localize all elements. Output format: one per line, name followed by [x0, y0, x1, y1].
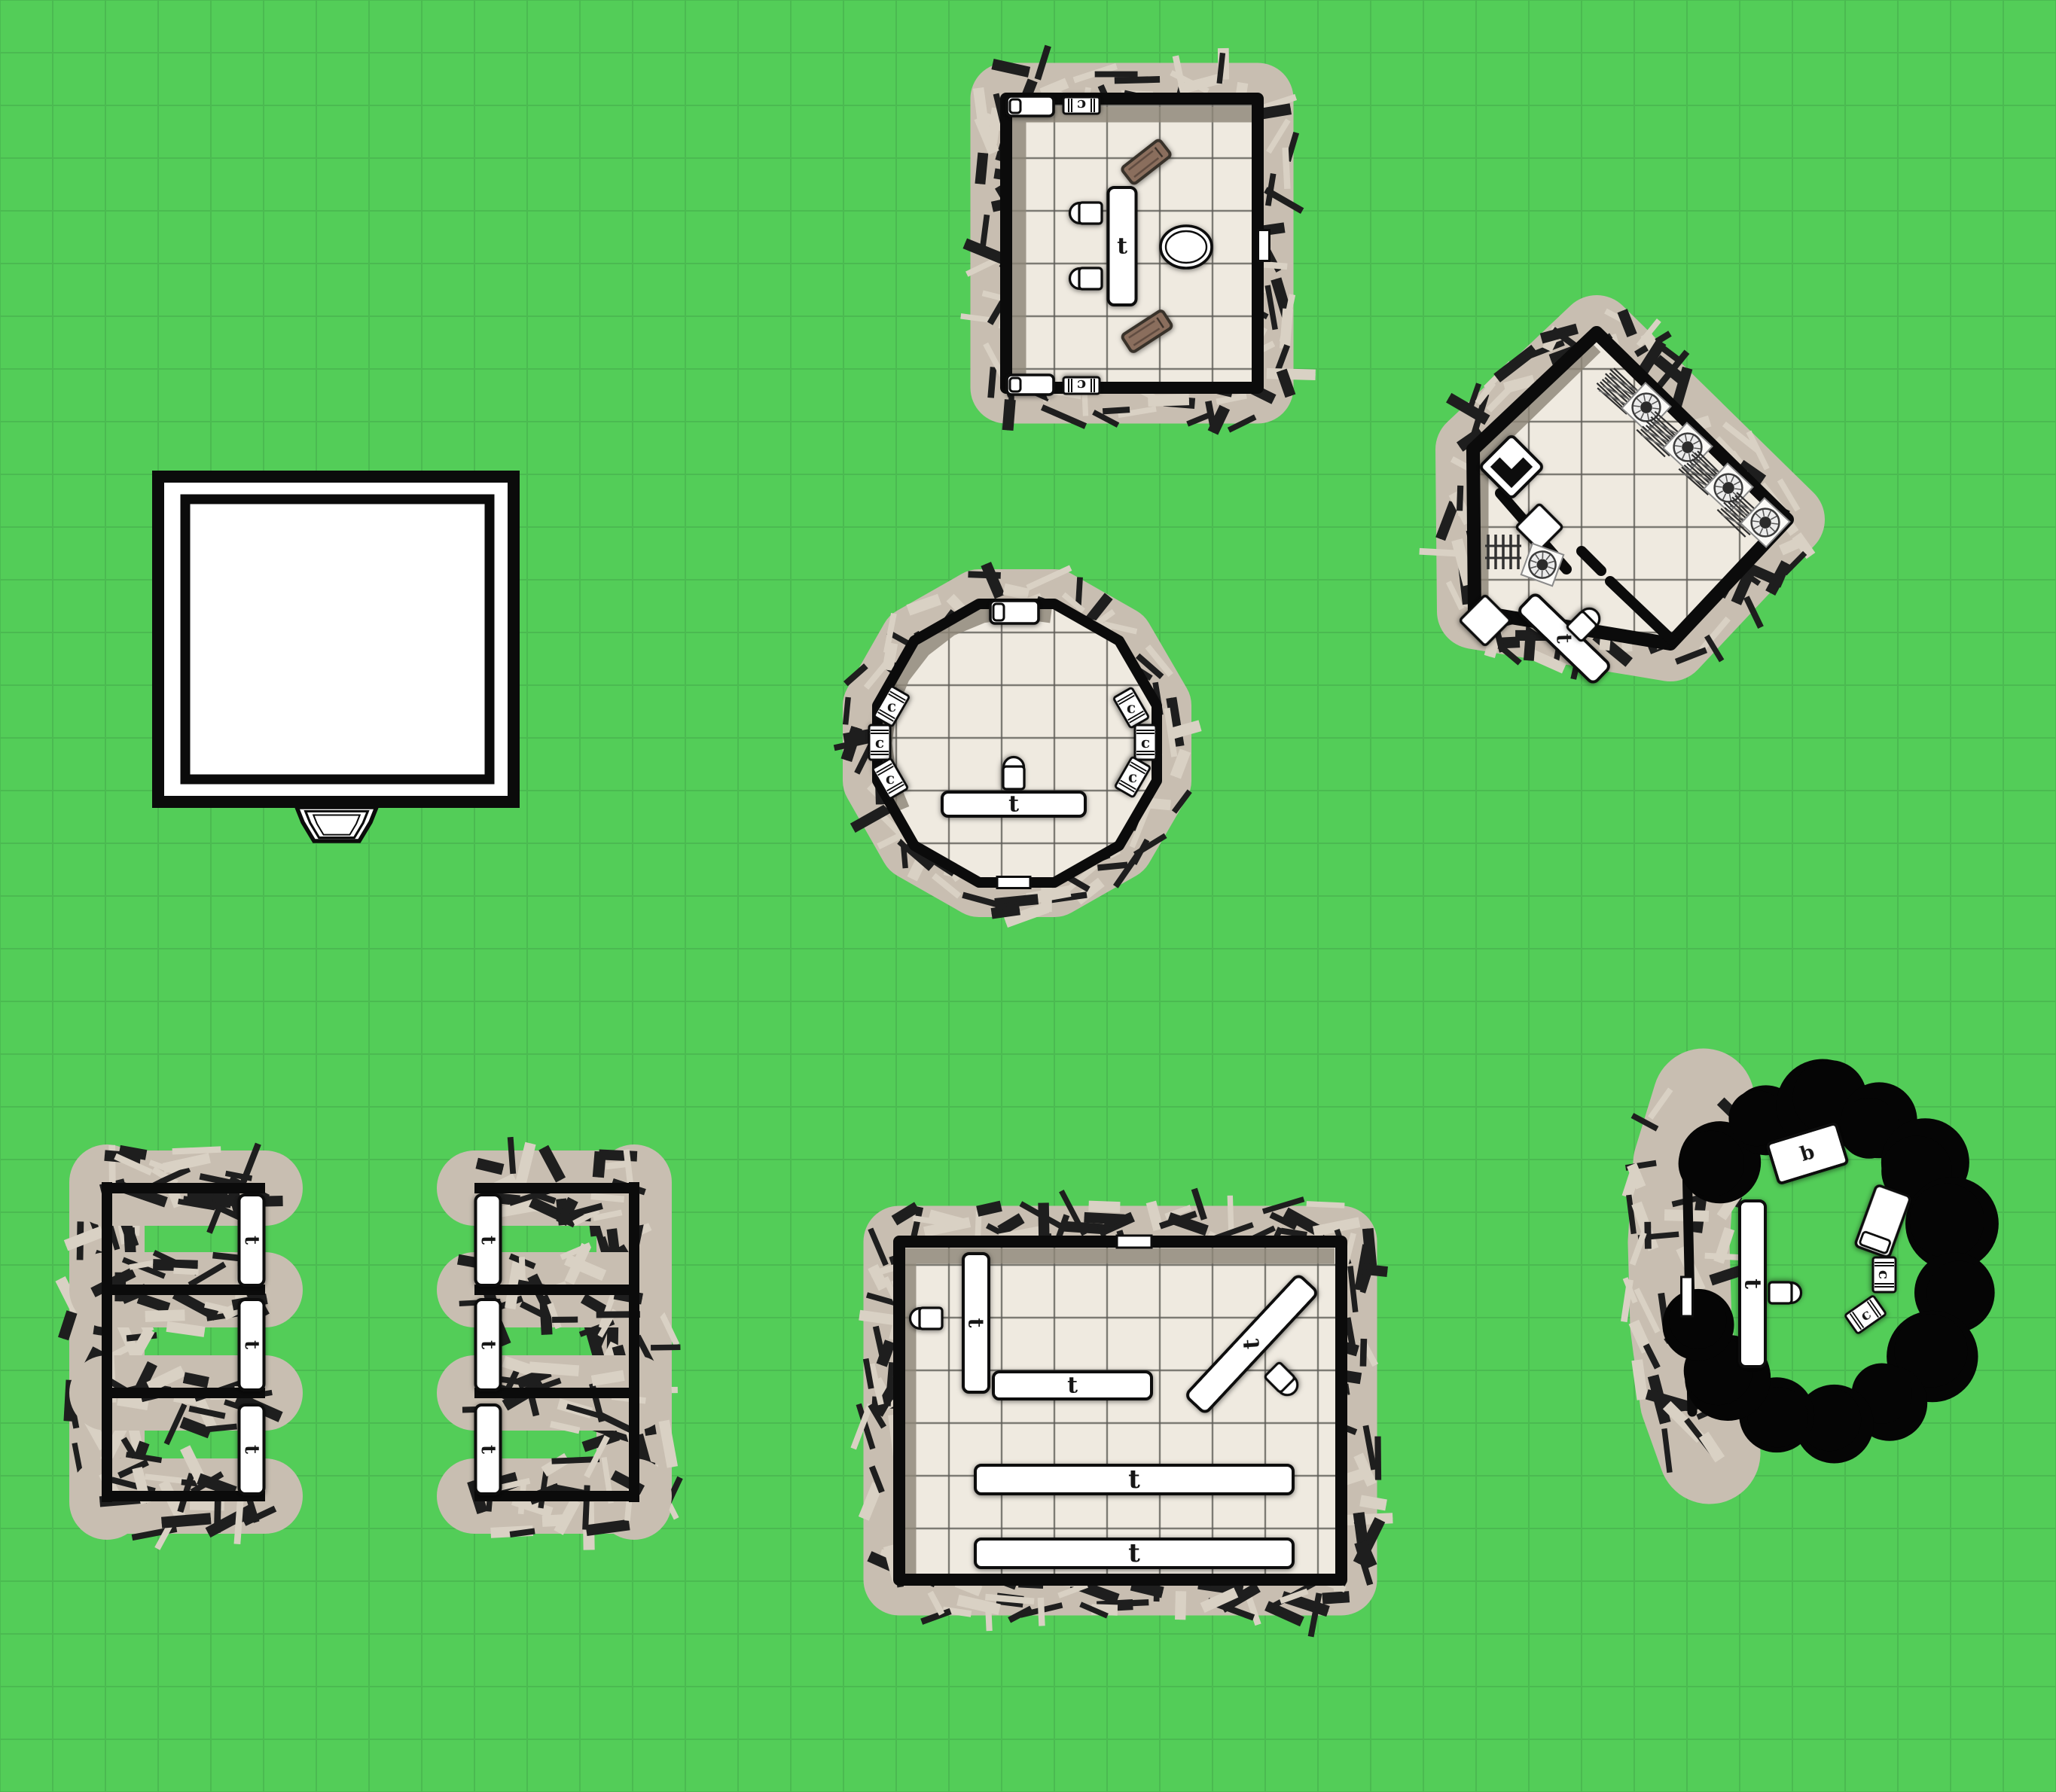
furniture-label: t [1128, 1538, 1140, 1568]
door-icon [997, 877, 1030, 888]
empty-square-building [158, 477, 514, 841]
furniture-label: c [1077, 376, 1086, 395]
chair-icon [1070, 268, 1103, 289]
furniture-label: c [1077, 96, 1086, 114]
chest-icon: c [869, 725, 890, 760]
table-icon: t [975, 1538, 1293, 1568]
table-icon: t [476, 1405, 501, 1494]
furniture-label: c [875, 733, 884, 751]
table-icon: t [239, 1195, 264, 1285]
table-icon: t [1740, 1201, 1766, 1367]
chair-icon [911, 1308, 943, 1329]
bed-icon [1007, 375, 1054, 395]
furniture-label: t [1008, 791, 1019, 818]
table-icon: t [993, 1372, 1152, 1399]
table-icon: t [476, 1195, 501, 1285]
furniture-label: t [477, 1236, 499, 1245]
chair-icon [1070, 203, 1103, 224]
furniture-label: t [1740, 1278, 1766, 1289]
table-icon: t [942, 791, 1085, 818]
table-icon: t [963, 1254, 989, 1392]
battle-map: ctctccccccttttttttttttbcct [0, 0, 2056, 1792]
bed-icon [1007, 96, 1054, 116]
table-icon: t [1109, 187, 1136, 305]
table-icon: t [239, 1300, 264, 1390]
hall-building: ctc [961, 46, 1316, 434]
furniture-label: t [1117, 233, 1127, 260]
furniture-label: c [1127, 699, 1136, 717]
chair-icon [1769, 1282, 1801, 1303]
furniture-label: t [964, 1318, 989, 1328]
furniture-label: t [240, 1340, 263, 1349]
door-icon [1258, 230, 1270, 261]
chair-icon [1003, 757, 1024, 790]
feast-hall: ttttt [853, 1189, 1393, 1637]
furniture-label: c [1128, 768, 1137, 786]
furniture-label: t [1238, 1338, 1265, 1350]
battle-map-canvas: ctctccccccttttttttttttbcct [0, 0, 2056, 1792]
bed-icon [990, 601, 1039, 623]
furniture-label: c [1875, 1270, 1893, 1279]
door-icon [1682, 1277, 1693, 1316]
porch-icon [297, 807, 377, 841]
furniture-label: t [240, 1445, 263, 1454]
table-icon: t [239, 1405, 264, 1494]
furniture-label: t [240, 1236, 263, 1245]
furniture-label: c [887, 697, 896, 715]
table-icon: t [476, 1300, 501, 1390]
chest-icon: c [1135, 725, 1156, 760]
furniture-label: t [477, 1445, 499, 1454]
furniture-label: t [1067, 1373, 1078, 1399]
building-wall [185, 499, 490, 779]
chest-icon: c [1063, 376, 1100, 395]
chest-icon: c [1873, 1257, 1896, 1292]
furniture-label: t [1128, 1464, 1140, 1495]
door-icon [1117, 1236, 1152, 1248]
table-icon: t [975, 1464, 1293, 1495]
chest-icon: c [1063, 96, 1100, 114]
round-table-icon [1161, 226, 1212, 268]
furniture-label: c [886, 770, 895, 788]
furniture-label: c [1141, 733, 1150, 751]
furniture-label: t [477, 1340, 499, 1349]
